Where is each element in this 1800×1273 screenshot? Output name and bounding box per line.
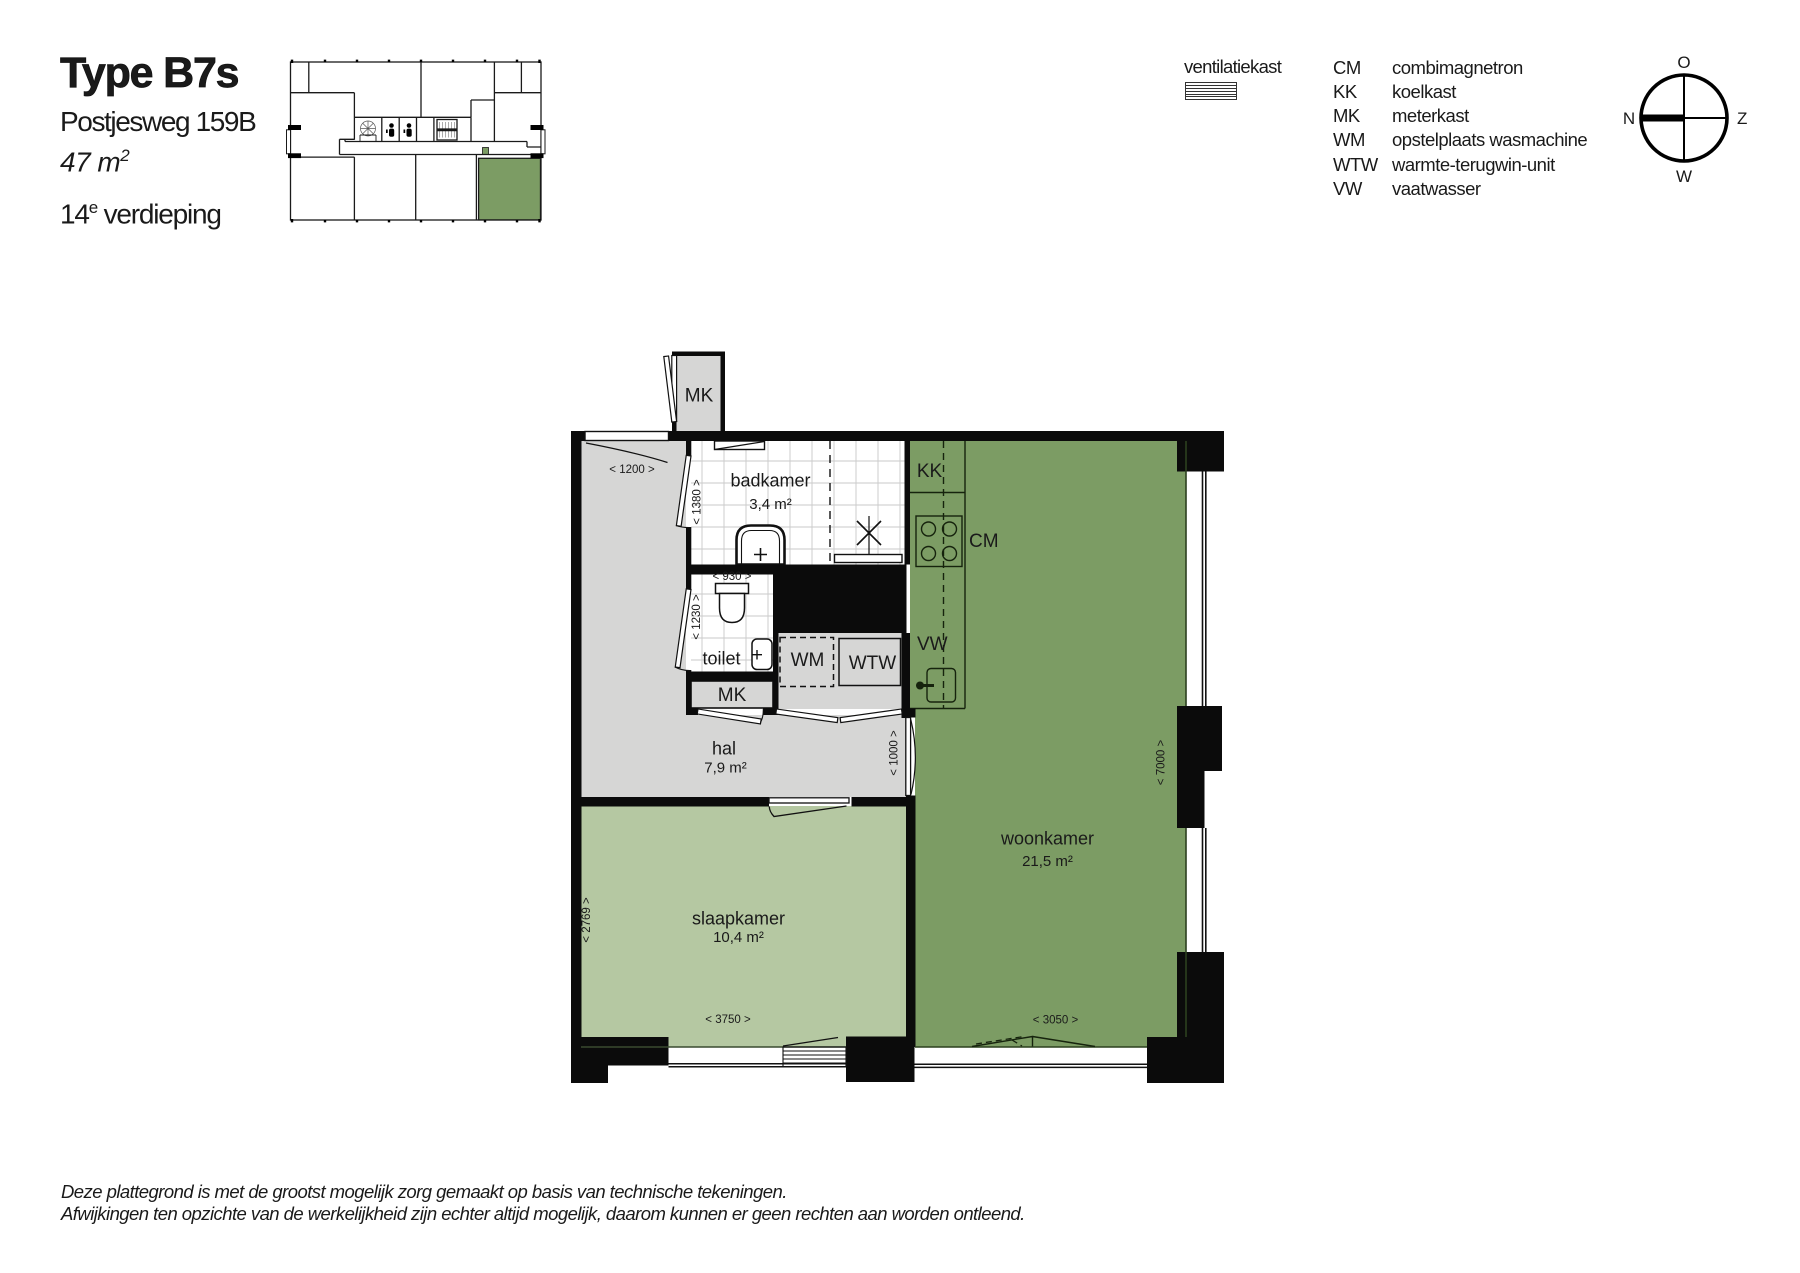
svg-text:21,5 m²: 21,5 m² [1022, 853, 1073, 870]
svg-text:< 1000 >: < 1000 > [889, 730, 901, 776]
svg-text:< 930 >: < 930 > [712, 571, 751, 583]
svg-text:< 3750 >: < 3750 > [705, 1014, 751, 1026]
svg-text:KK: KK [917, 461, 943, 482]
svg-text:MK: MK [685, 386, 714, 407]
svg-text:CM: CM [969, 531, 999, 552]
svg-text:badkamer: badkamer [730, 471, 810, 491]
svg-text:WTW: WTW [849, 653, 897, 674]
svg-text:< 7000 >: < 7000 > [1156, 740, 1168, 786]
svg-text:< 1230 >: < 1230 > [691, 594, 703, 640]
svg-text:< 2769 >: < 2769 > [581, 897, 593, 943]
svg-text:< 1200 >: < 1200 > [609, 464, 655, 476]
svg-text:MK: MK [718, 685, 747, 706]
svg-text:< 1380 >: < 1380 > [692, 479, 704, 525]
svg-text:slaapkamer: slaapkamer [692, 909, 785, 929]
svg-text:WM: WM [791, 650, 825, 671]
svg-text:3,4 m²: 3,4 m² [749, 496, 792, 513]
svg-text:woonkamer: woonkamer [1000, 829, 1094, 849]
svg-text:7,9 m²: 7,9 m² [704, 760, 747, 777]
svg-text:10,4 m²: 10,4 m² [713, 929, 764, 946]
svg-text:VW: VW [917, 634, 948, 655]
svg-text:< 3050 >: < 3050 > [1033, 1015, 1079, 1027]
svg-text:toilet: toilet [702, 649, 740, 669]
svg-text:hal: hal [712, 739, 736, 759]
